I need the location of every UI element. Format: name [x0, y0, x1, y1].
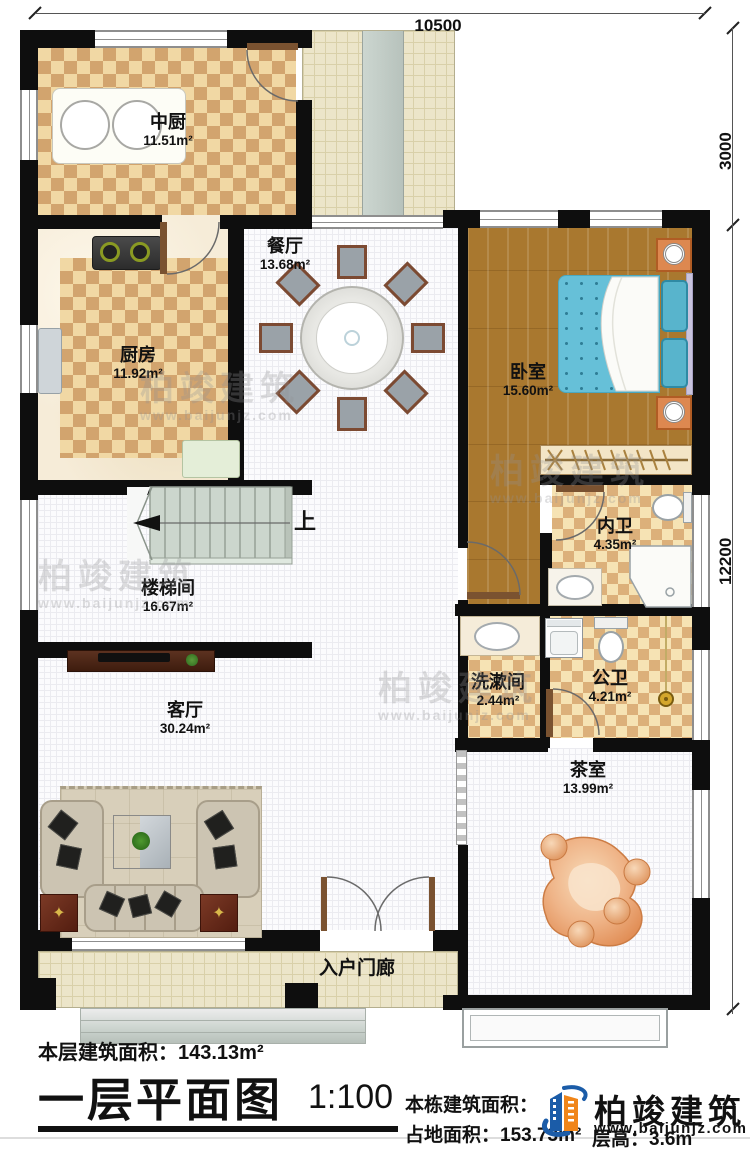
wall-living-bottom-c: [433, 930, 458, 951]
dimension-line-top: [35, 13, 705, 14]
label-rumenlang: 入户门廊: [287, 958, 427, 980]
tv-screen: [98, 653, 170, 662]
side-porch-step: [362, 31, 404, 227]
toilet-public: [598, 631, 624, 663]
window-left-3: [20, 500, 38, 610]
tea-room-bay-steps-inner: [470, 1015, 660, 1041]
wall-bath-bottom-b: [593, 738, 695, 752]
company-logo-url: www.baijunjz.com: [594, 1120, 747, 1137]
wall-tea-left: [458, 845, 468, 997]
bath-sink-basin: [556, 575, 594, 600]
toilet-tank-ensuite: [683, 492, 692, 523]
title-underline-thick: [38, 1126, 398, 1132]
plan-title: 一层平面图: [38, 1064, 283, 1130]
wall-zhongchu-bottom-a: [20, 215, 162, 229]
kitchen-appliance: [182, 440, 240, 478]
wall-zhongchu-bottom-b: [220, 215, 312, 229]
wall-kitchen-stair: [20, 480, 312, 495]
wall-bath-bottom-a: [455, 738, 548, 752]
porch-pillar-left: [20, 978, 56, 1010]
floor-plan-canvas: ✦ ✦: [0, 0, 750, 1151]
label-zhongchu: 中厨11.51m²: [108, 112, 228, 149]
sliding-door-track: [456, 750, 467, 845]
company-logo-icon: [538, 1083, 592, 1137]
side-table-right: ✦: [200, 894, 238, 932]
label-keting: 客厅30.24m²: [125, 700, 245, 737]
washing-machine-lid: [550, 631, 578, 655]
kitchen-sink: [38, 328, 62, 394]
bed-pillow: [661, 280, 688, 332]
floor-area-stat: 本层建筑面积：143.13m²: [38, 1036, 264, 1065]
label-chufang: 厨房11.92m²: [78, 345, 198, 382]
dimension-right-upper: 3000: [716, 100, 736, 170]
label-neiwei: 内卫4.35m²: [555, 516, 675, 553]
window-right-publicbath: [692, 650, 710, 740]
label-loutijian: 楼梯间16.67m²: [108, 578, 228, 615]
stove-burner-1: [100, 242, 120, 262]
dining-chair: [337, 245, 367, 279]
label-woshi: 卧室15.60m²: [468, 362, 588, 399]
wall-zhongchu-right: [296, 100, 312, 217]
window-right-ensuite: [692, 495, 710, 607]
building-area-stat: 本栋建筑面积：: [405, 1090, 538, 1117]
dining-chair: [259, 323, 293, 353]
window-bedroom-top-2: [590, 210, 662, 228]
entry-steps-line: [80, 1032, 366, 1033]
wall-bedroom-left: [458, 228, 468, 548]
bed-pillow: [661, 338, 688, 388]
sink-bowl-1: [60, 100, 110, 150]
dining-chair: [411, 323, 445, 353]
window-porch-dining: [312, 215, 443, 229]
sofa-pillow: [56, 844, 82, 870]
label-xishujian: 洗漱间2.44m²: [438, 672, 558, 709]
floor-corridor: [467, 445, 540, 618]
nightstand-lamp: [663, 243, 685, 265]
stairs-up-label: 上: [294, 504, 316, 536]
window-left-1: [20, 90, 38, 160]
side-table-left: ✦: [40, 894, 78, 932]
stove-burner-2: [130, 242, 150, 262]
wall-wardrobe-bottom: [540, 475, 692, 485]
sofa-pillow: [213, 845, 238, 870]
console-plant: [186, 654, 198, 666]
toilet-tank-public: [594, 617, 628, 629]
coffee-table-plant: [132, 832, 150, 850]
dimension-top: 10500: [393, 16, 483, 36]
label-canting: 餐厅13.68m²: [230, 236, 340, 273]
dining-table-center: [344, 330, 360, 346]
entry-steps-line: [80, 1020, 366, 1021]
window-bedroom-top-1: [480, 210, 558, 228]
wardrobe: [540, 445, 692, 475]
label-chashi: 茶室13.99m²: [528, 760, 648, 797]
window-right-tearoom: [692, 790, 710, 898]
nightstand-lamp: [663, 401, 685, 423]
washroom-basin: [474, 622, 520, 651]
door-opening-living: [320, 930, 433, 951]
dimension-right-lower: 12200: [716, 485, 736, 585]
label-gongwei: 公卫4.21m²: [550, 668, 670, 705]
plan-scale: 1:100: [308, 1078, 393, 1117]
dining-chair: [337, 397, 367, 431]
window-left-2: [20, 325, 38, 393]
washing-machine-panel: [547, 620, 581, 627]
window-zhongchu-top: [95, 30, 227, 48]
